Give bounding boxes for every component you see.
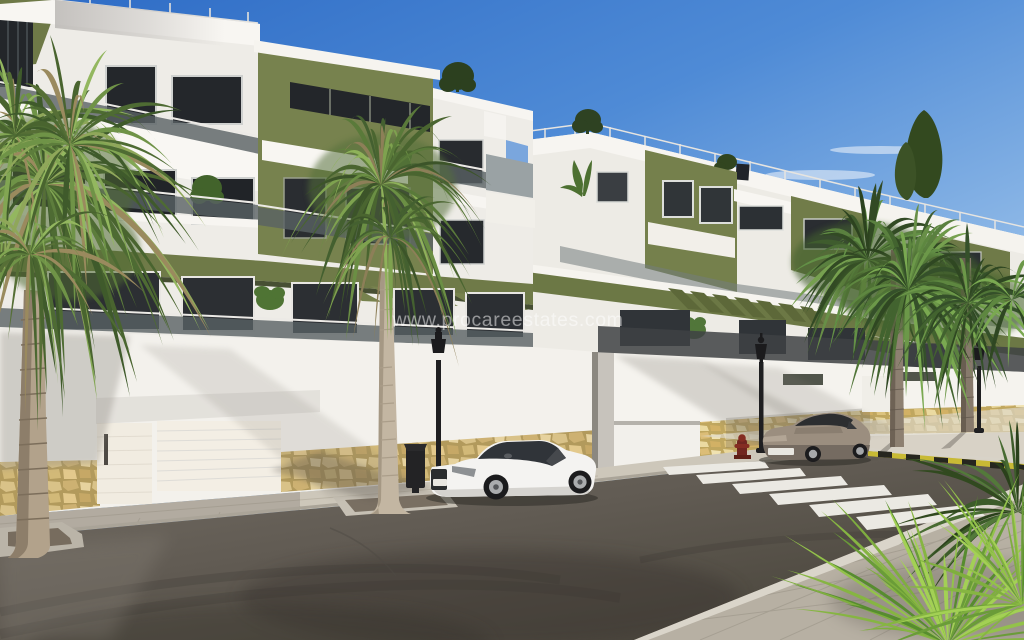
svg-text:www.procareestates.com: www.procareestates.com xyxy=(391,309,623,331)
